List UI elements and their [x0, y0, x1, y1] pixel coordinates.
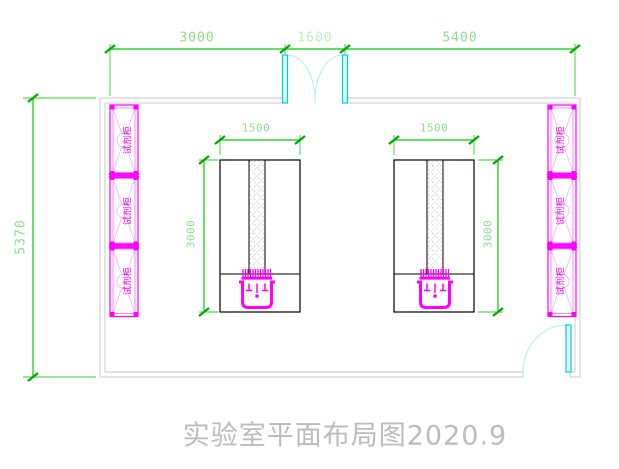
extension-lines [23, 98, 96, 377]
cabinet-separator [547, 173, 577, 175]
cabinet-separator [547, 243, 577, 245]
room-walls [100, 98, 580, 377]
cabinet-separator [547, 176, 577, 178]
cabinet-label: 试剂柜 [121, 267, 134, 296]
door-leaf [283, 55, 288, 103]
dim-label-top-1600: 1600 [297, 31, 332, 46]
dim-label-left-5370: 5370 [14, 219, 29, 254]
reagent-shelf-hatch [428, 161, 443, 275]
drawing-title: 实验室平面布局图2020.9 [183, 414, 507, 453]
dimension-left [23, 94, 96, 381]
lab-bench-left [220, 160, 300, 312]
dim-label-bench-right-width: 1500 [420, 122, 449, 135]
door-swing-arc [288, 55, 343, 103]
cabinet-separator [109, 176, 139, 178]
cabinet-separator [109, 173, 139, 175]
reagent-shelf-hatch [250, 161, 265, 275]
cabinet-label: 试剂柜 [121, 197, 134, 226]
dim-label-top-5400: 5400 [442, 31, 477, 46]
cabinet-label: 试剂柜 [554, 126, 567, 155]
double-door-top [283, 55, 348, 103]
dimension-bench-left-depth [199, 156, 218, 316]
cabinet-separator [109, 243, 139, 245]
cabinet-label: 试剂柜 [554, 197, 567, 226]
door-leaf [566, 325, 571, 372]
door-leaf [343, 55, 348, 103]
dimension-bench-right-width [389, 135, 479, 155]
dim-label-bench-left-width: 1500 [242, 122, 271, 135]
floor-plan-svg [0, 0, 619, 469]
cabinet-separator [109, 247, 139, 249]
lab-bench-right [394, 160, 474, 312]
single-door-bottom-right [523, 325, 571, 372]
dimension-bench-left-width [215, 135, 305, 155]
door-swing-arc [523, 325, 566, 372]
dim-label-bench-left-depth: 3000 [185, 220, 198, 249]
dim-label-bench-right-depth: 3000 [482, 220, 495, 249]
cabinet-label: 试剂柜 [121, 126, 134, 155]
cabinet-label: 试剂柜 [554, 267, 567, 296]
dim-label-top-3000: 3000 [179, 31, 214, 46]
cabinet-separator [547, 247, 577, 249]
cad-drawing-canvas: 3000 1600 5400 5370 1500 1500 3000 3000 … [0, 0, 619, 469]
